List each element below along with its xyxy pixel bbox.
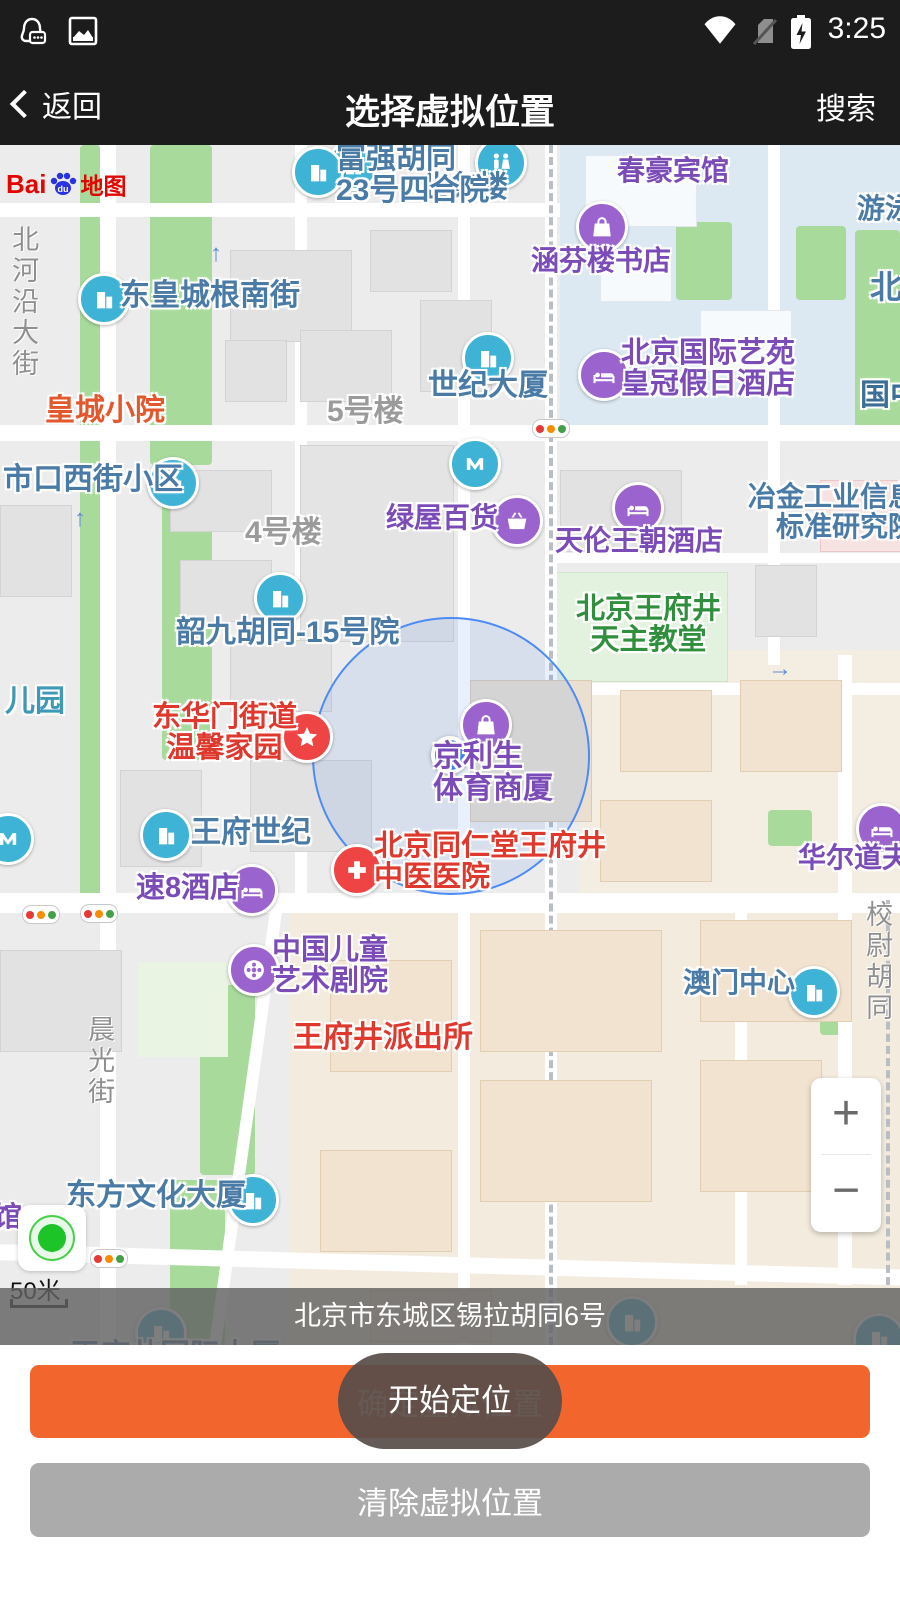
battery-charging-icon — [790, 14, 812, 50]
map-label: 北京同仁堂王府井中医医院 — [374, 831, 606, 894]
traffic-light-icon — [532, 419, 570, 438]
map-label: 北京王府井天主教堂 — [576, 594, 721, 657]
map-label: 速8酒店 — [136, 873, 239, 904]
map-label: 春豪宾馆 — [617, 156, 729, 186]
map-label: 京利生体育商厦 — [433, 741, 553, 806]
map-building — [600, 800, 712, 882]
map-building — [620, 690, 712, 772]
map-building — [480, 930, 662, 1052]
map-building — [300, 330, 392, 402]
map-label: 游泳 — [857, 194, 900, 224]
map-label: 世纪大厦 — [428, 370, 548, 402]
page-title: 选择虚拟位置 — [0, 84, 900, 135]
map-label: 皇城小院 — [45, 395, 165, 427]
map-park — [796, 226, 846, 300]
map-building — [700, 1060, 822, 1192]
baidu-paw-icon: du — [48, 170, 78, 198]
street-name-label: 晨光街 — [84, 1015, 113, 1108]
map-park — [768, 810, 812, 846]
zoom-out-button[interactable]: − — [811, 1155, 881, 1231]
svg-text:du: du — [58, 184, 69, 194]
map-building — [740, 680, 842, 772]
map-road — [0, 425, 900, 441]
building-icon — [788, 966, 840, 1018]
qq-chat-icon — [14, 14, 50, 50]
map-label: 澳门中心 — [683, 968, 795, 998]
map-road — [548, 683, 900, 695]
map-label: 中国儿童艺术剧院 — [272, 935, 388, 998]
zoom-control: + − — [811, 1078, 881, 1232]
screenshot-icon — [66, 14, 100, 48]
map-label: 冶金工业信息标准研究院 — [748, 482, 900, 542]
map-label: 儿园 — [5, 686, 65, 718]
map-building — [370, 230, 452, 292]
map-building — [225, 340, 287, 402]
map-label: 北 — [870, 270, 900, 305]
wifi-icon — [701, 14, 739, 46]
locating-toast: 开始定位 — [338, 1353, 562, 1449]
location-dot-icon — [38, 1224, 66, 1252]
map-label: 华尔道夫 — [798, 843, 900, 873]
status-bar: 3:25 — [0, 0, 900, 58]
clear-virtual-location-button[interactable]: 清除虚拟位置 — [30, 1463, 870, 1537]
no-sim-icon — [748, 14, 782, 48]
traffic-light-icon — [90, 1249, 128, 1268]
search-button[interactable]: 搜索 — [816, 84, 876, 128]
map-road — [0, 893, 900, 913]
map-park — [138, 962, 228, 1057]
basket-icon — [491, 495, 543, 547]
map-park — [676, 222, 732, 300]
building-icon — [140, 809, 192, 861]
map-label: 东皇城根南街 — [120, 280, 300, 312]
map-label: 5号楼 — [327, 396, 404, 428]
map-canvas[interactable]: ↑ ↑ → 业务楼 富强胡同23号四合院 春豪宾馆 涵芬楼书店 游泳 世纪大厦 … — [0, 145, 900, 1345]
map-label: 天伦王朝酒店 — [555, 526, 723, 556]
map-label: 北京国际艺苑皇冠假日酒店 — [621, 338, 795, 401]
map-label: 东方文化大厦 — [66, 1180, 246, 1212]
map-building — [480, 1080, 652, 1202]
map-road — [100, 145, 116, 1345]
metro-icon — [0, 813, 34, 865]
baidu-maps-logo: Bai du 地图 — [6, 167, 126, 201]
metro-icon — [449, 438, 501, 490]
map-label: 韶九胡同-15号院 — [176, 617, 399, 649]
nav-bar: 返回 选择虚拟位置 搜索 — [0, 58, 900, 145]
one-way-arrow-icon: ↑ — [74, 505, 86, 533]
map-building — [0, 505, 72, 597]
map-building — [320, 1150, 452, 1252]
my-location-button[interactable] — [18, 1205, 86, 1271]
map-label: 王府世纪 — [191, 817, 311, 849]
map-label: 市口西街小区 — [3, 464, 183, 496]
map-label: 东华门街道温馨家园 — [152, 702, 297, 765]
map-label: 涵芬楼书店 — [531, 246, 671, 276]
traffic-light-icon — [22, 905, 60, 924]
clock: 3:25 — [828, 12, 886, 46]
bottom-panel: 确定虚拟位置 开始定位 清除虚拟位置 — [0, 1345, 900, 1600]
street-name-label: 北河沿大街 — [8, 225, 37, 380]
map-building — [755, 565, 817, 637]
map-label: 绿屋百货 — [386, 503, 498, 533]
zoom-in-button[interactable]: + — [811, 1078, 881, 1154]
one-way-arrow-icon: ↑ — [210, 240, 222, 268]
map-label: 国中 — [860, 380, 900, 412]
address-bar: 北京市东城区锡拉胡同6号 — [0, 1288, 900, 1345]
map-building — [300, 445, 454, 642]
map-label: 富强胡同23号四合院 — [336, 145, 489, 208]
one-way-arrow-icon: → — [768, 655, 792, 683]
map-label: 4号楼 — [245, 517, 322, 549]
map-label: 王府井派出所 — [293, 1022, 473, 1054]
traffic-light-icon — [80, 904, 118, 923]
street-name-label: 校尉胡同 — [862, 900, 891, 1024]
